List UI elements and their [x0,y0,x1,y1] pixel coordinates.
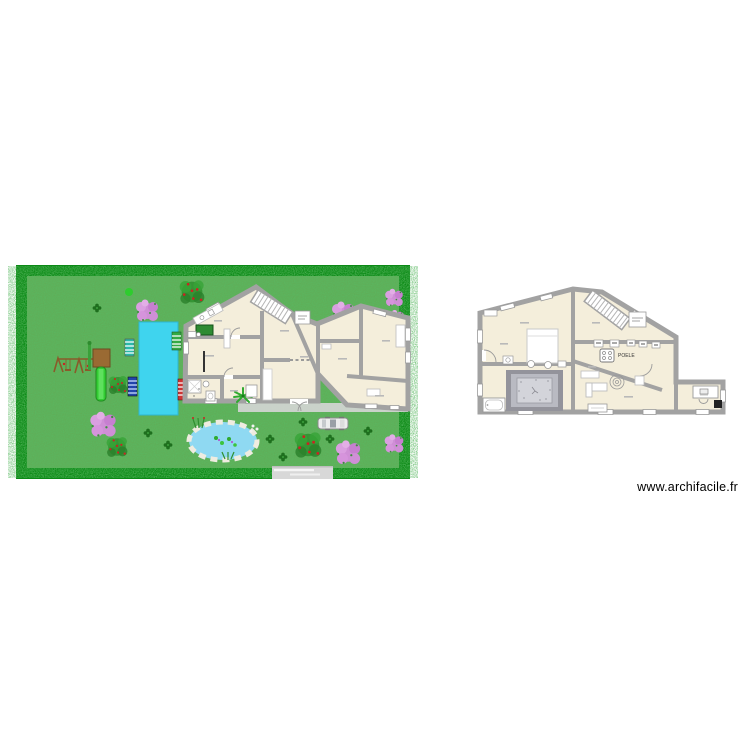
low-table[interactable] [588,404,607,412]
upper-ac-unit[interactable] [629,312,646,327]
corner-shelf[interactable] [484,310,497,316]
bed[interactable] [527,329,558,363]
sun-lounger-green[interactable] [172,332,181,350]
hall-cabinet[interactable] [246,385,257,397]
ac-unit[interactable] [295,311,310,324]
cupboard-strip[interactable] [203,351,205,372]
upper-floor-plan[interactable]: POELE [478,289,726,415]
wing-table[interactable] [367,389,380,396]
washing-machine[interactable] [188,332,201,338]
cabinet-small[interactable] [558,361,566,367]
console-table[interactable] [581,371,599,378]
driveway[interactable] [272,466,333,479]
stove[interactable] [600,349,614,362]
plan-stage: POELE [0,0,750,750]
spa-square[interactable] [506,370,563,411]
sink-right[interactable] [545,362,552,369]
plan-canvas: POELE [0,0,750,750]
sun-lounger-teal[interactable] [125,339,134,356]
shelf[interactable] [322,344,331,349]
bathtub[interactable] [483,398,505,412]
sun-lounger-navy[interactable] [128,377,137,396]
side-table[interactable] [635,376,644,385]
sink-left[interactable] [528,361,535,368]
laundry-machine[interactable] [503,356,513,364]
stove-label: POELE [618,353,635,359]
watermark: www.archifacile.fr [637,480,738,494]
right-wardrobe[interactable] [396,325,405,347]
wardrobe[interactable] [224,329,230,348]
car[interactable] [318,417,348,430]
hall-island[interactable] [263,369,272,400]
bright-green-bush[interactable] [125,288,133,296]
